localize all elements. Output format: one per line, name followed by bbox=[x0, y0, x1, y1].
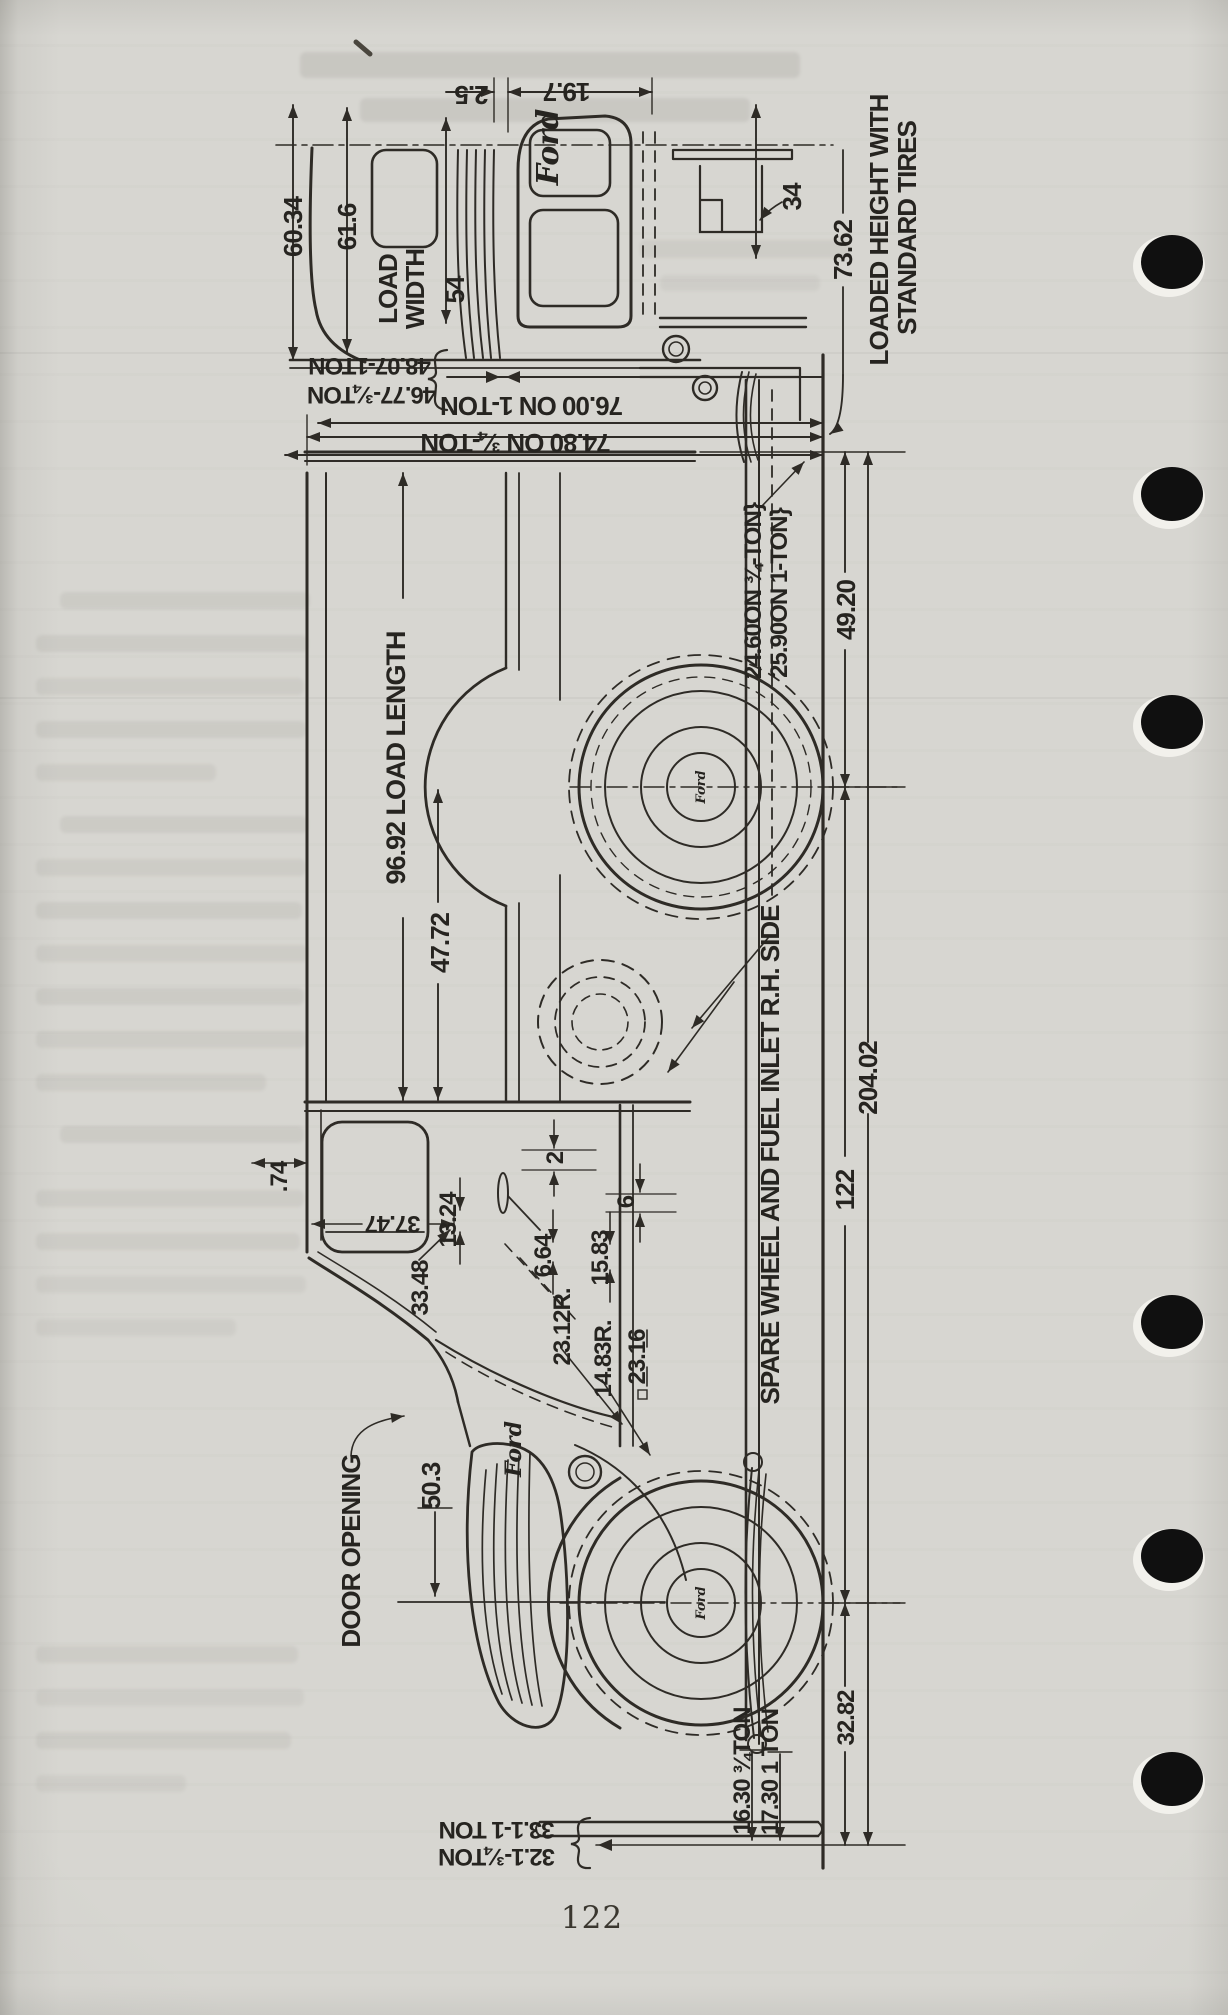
dim-label-32-1: 32.1-¾TON bbox=[439, 1843, 555, 1870]
dim-label-33-1: 33.1-1 TON bbox=[440, 1816, 555, 1843]
loaded-height-note-line2: STANDARD TIRES bbox=[892, 120, 922, 334]
binder-hole bbox=[1133, 1752, 1205, 1814]
dim-label-6: 6 bbox=[613, 1195, 640, 1208]
scanned-manual-page: 60.34 61.6 LOAD WIDTH 54 2.5 19.7 34 73.… bbox=[0, 0, 1228, 2015]
dim-label-76-00: 76.00 ON 1-TON bbox=[441, 391, 623, 421]
dim-label-46-77: 46.77-¾TON bbox=[308, 381, 436, 408]
binder-hole bbox=[1133, 1529, 1205, 1591]
dim-label-2: 2 bbox=[542, 1151, 569, 1164]
dim-label-48-07: 48.07-1TON bbox=[309, 352, 431, 379]
dim-label-37-47: 37.47 bbox=[365, 1210, 421, 1237]
dim-label-13-24: 13.24 bbox=[435, 1191, 462, 1248]
dim-label-204-02: 204.02 bbox=[853, 1041, 883, 1115]
ford-logo-script: Ford bbox=[501, 1421, 527, 1478]
ford-logo-script: Ford bbox=[531, 109, 566, 186]
dim-label-19-7: 19.7 bbox=[543, 77, 590, 107]
dim-label-25-90: 25.90ON 1-TON} bbox=[766, 508, 793, 678]
ford-logo-script: Ford bbox=[694, 1586, 709, 1620]
page-number: 122 bbox=[561, 1900, 623, 1936]
dim-label-width: WIDTH bbox=[400, 249, 430, 329]
truck-dimension-diagram: 60.34 61.6 LOAD WIDTH 54 2.5 19.7 34 73.… bbox=[0, 0, 1228, 2015]
dim-label-23-16: 23.16 bbox=[624, 1329, 651, 1385]
binder-hole bbox=[1133, 695, 1205, 757]
dim-label-17-30: 17.30 1 TON bbox=[757, 1709, 784, 1835]
front-end-drawing bbox=[467, 1444, 900, 1836]
dim-label-6-64: 6.64 bbox=[530, 1233, 557, 1277]
side-view-drawing bbox=[305, 355, 900, 1868]
dim-label-14-83r: 14.83R. bbox=[590, 1320, 617, 1397]
dim-label-54: 54 bbox=[440, 275, 470, 303]
dimension-brace bbox=[571, 1818, 590, 1868]
dim-label-16-30: 16.30 ¾TON bbox=[729, 1708, 756, 1835]
binder-holes bbox=[1133, 235, 1205, 1814]
spare-wheel-note: SPARE WHEEL AND FUEL INLET R.H. SIDE bbox=[755, 905, 785, 1405]
dim-label-2-5: 2.5 bbox=[455, 80, 489, 110]
scan-speck bbox=[356, 42, 370, 54]
dim-label-60-34: 60.34 bbox=[278, 195, 308, 257]
dim-label-load: LOAD bbox=[373, 254, 403, 324]
dim-label-74-80: 74.80 ON ¾-TON bbox=[421, 428, 610, 458]
dim-label-47-72: 47.72 bbox=[425, 912, 455, 973]
dim-label-33-48: 33.48 bbox=[407, 1260, 434, 1316]
dim-label-61-6: 61.6 bbox=[332, 203, 362, 250]
dim-label-49-20: 49.20 bbox=[831, 579, 861, 640]
binder-hole bbox=[1133, 467, 1205, 529]
binder-hole bbox=[1133, 1295, 1205, 1357]
dim-label-15-83: 15.83 bbox=[587, 1230, 614, 1286]
loaded-height-note-line1: LOADED HEIGHT WITH bbox=[864, 94, 894, 365]
dim-label-34: 34 bbox=[777, 182, 807, 210]
dim-label-50-3: 50.3 bbox=[416, 1462, 446, 1509]
dim-label-load-length: 96.92 LOAD LENGTH bbox=[381, 631, 411, 884]
ford-logo-script: Ford bbox=[694, 770, 709, 804]
dim-label-23-12r: 23.12R. bbox=[549, 1288, 576, 1365]
dim-label-32-82: 32.82 bbox=[833, 1690, 860, 1746]
dim-label-0-74: .74 bbox=[266, 1160, 293, 1192]
dim-label-24-60: 24.60ON ¾-TON} bbox=[740, 502, 767, 679]
dim-label-wheelbase-122: 122 bbox=[830, 1169, 860, 1210]
dim-label-73-62: 73.62 bbox=[828, 219, 858, 280]
door-opening-label: DOOR OPENING bbox=[336, 1454, 366, 1647]
binder-hole bbox=[1133, 235, 1205, 297]
